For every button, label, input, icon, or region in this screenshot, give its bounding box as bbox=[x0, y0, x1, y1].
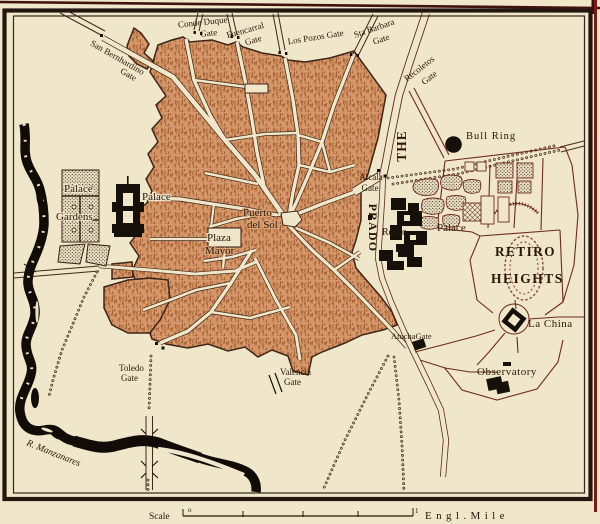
svg-text:Plaza: Plaza bbox=[207, 232, 231, 244]
svg-text:THE: THE bbox=[394, 130, 409, 162]
svg-text:Alcala: Alcala bbox=[359, 172, 382, 182]
svg-text:Palace: Palace bbox=[64, 183, 93, 195]
svg-text:Gate: Gate bbox=[284, 377, 301, 387]
svg-text:PRADO: PRADO bbox=[366, 204, 380, 253]
svg-text:Bull Ring: Bull Ring bbox=[466, 131, 516, 142]
svg-text:Retiro: Retiro bbox=[382, 227, 407, 238]
svg-text:Gate: Gate bbox=[362, 183, 379, 193]
svg-text:Gate: Gate bbox=[200, 27, 218, 39]
svg-text:Engl.Mile: Engl.Mile bbox=[425, 510, 509, 522]
svg-text:del Sol: del Sol bbox=[247, 219, 278, 231]
svg-text:HEIGHTS: HEIGHTS bbox=[491, 271, 564, 286]
svg-text:Gardens: Gardens bbox=[56, 211, 93, 223]
svg-text:Valencia: Valencia bbox=[280, 367, 311, 377]
svg-text:Observatory: Observatory bbox=[477, 366, 537, 378]
svg-text:Puerto: Puerto bbox=[243, 207, 272, 219]
svg-text:RETIRO: RETIRO bbox=[495, 244, 556, 259]
svg-text:AtochaGate: AtochaGate bbox=[391, 331, 432, 341]
svg-text:Gate: Gate bbox=[121, 373, 138, 383]
svg-text:Palace: Palace bbox=[437, 222, 466, 234]
svg-text:1: 1 bbox=[415, 507, 419, 515]
svg-text:Mayor: Mayor bbox=[205, 245, 235, 257]
svg-text:Toledo: Toledo bbox=[119, 363, 144, 373]
svg-text:La China: La China bbox=[528, 318, 573, 330]
svg-text:o: o bbox=[188, 506, 192, 514]
svg-text:Scale: Scale bbox=[149, 512, 170, 522]
svg-text:Palace: Palace bbox=[142, 191, 171, 203]
